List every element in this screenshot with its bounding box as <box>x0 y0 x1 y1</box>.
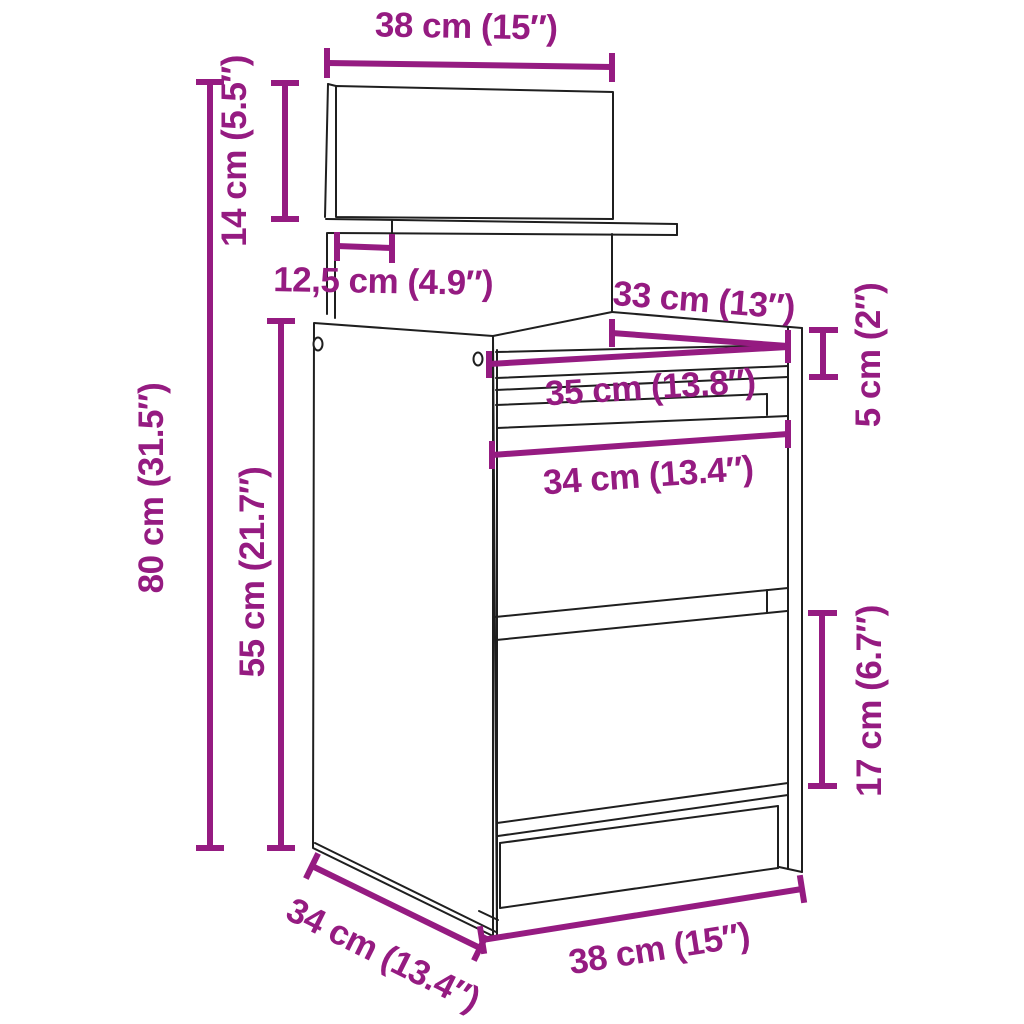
plinth <box>500 806 802 908</box>
dim-total-height-label: 80 cm (31.5″) <box>132 383 171 594</box>
drawer-bottom <box>496 590 788 836</box>
dim-base-width: 38 cm (15″) <box>480 875 804 982</box>
dim-panel-height: 14 cm (5.5″) <box>215 55 299 247</box>
dim-cabinet-height-label: 55 cm (21.7″) <box>233 467 272 678</box>
dim-drawer-width: 34 cm (13.4″) <box>492 420 788 502</box>
dim-panel-width-label: 38 cm (15″) <box>375 5 558 47</box>
dim-top-depth-label: 33 cm (13″) <box>611 274 796 327</box>
dim-panel-width: 38 cm (15″) <box>327 5 612 82</box>
dim-shelf-depth: 12,5 cm (4.9″) <box>273 232 494 303</box>
dim-top-thickness-label: 5 cm (2″) <box>849 283 888 428</box>
cabinet-line-art <box>313 84 802 938</box>
dim-drawer-width-label: 34 cm (13.4″) <box>542 449 755 503</box>
screw-hole <box>314 338 323 351</box>
screw-hole <box>474 353 483 366</box>
dim-top-thickness: 5 cm (2″) <box>809 283 888 428</box>
diagram-canvas: 38 cm (15″) 14 cm (5.5″) 12,5 cm (4.9″) … <box>0 0 1024 1024</box>
dim-cabinet-height: 55 cm (21.7″) <box>233 321 295 848</box>
cabinet-side-panel <box>313 323 497 938</box>
dim-shelf-depth-label: 12,5 cm (4.9″) <box>273 260 494 303</box>
furniture-diagram-svg: 38 cm (15″) 14 cm (5.5″) 12,5 cm (4.9″) … <box>0 0 1024 1024</box>
cabinet-right-edge <box>788 327 802 872</box>
dim-drawer-height-label: 17 cm (6.7″) <box>850 605 889 797</box>
dim-drawer-height: 17 cm (6.7″) <box>808 605 889 797</box>
dim-total-height: 80 cm (31.5″) <box>132 82 224 848</box>
wall-shelf <box>326 219 677 235</box>
dim-inner-width-label: 35 cm (13.8″) <box>544 362 757 414</box>
